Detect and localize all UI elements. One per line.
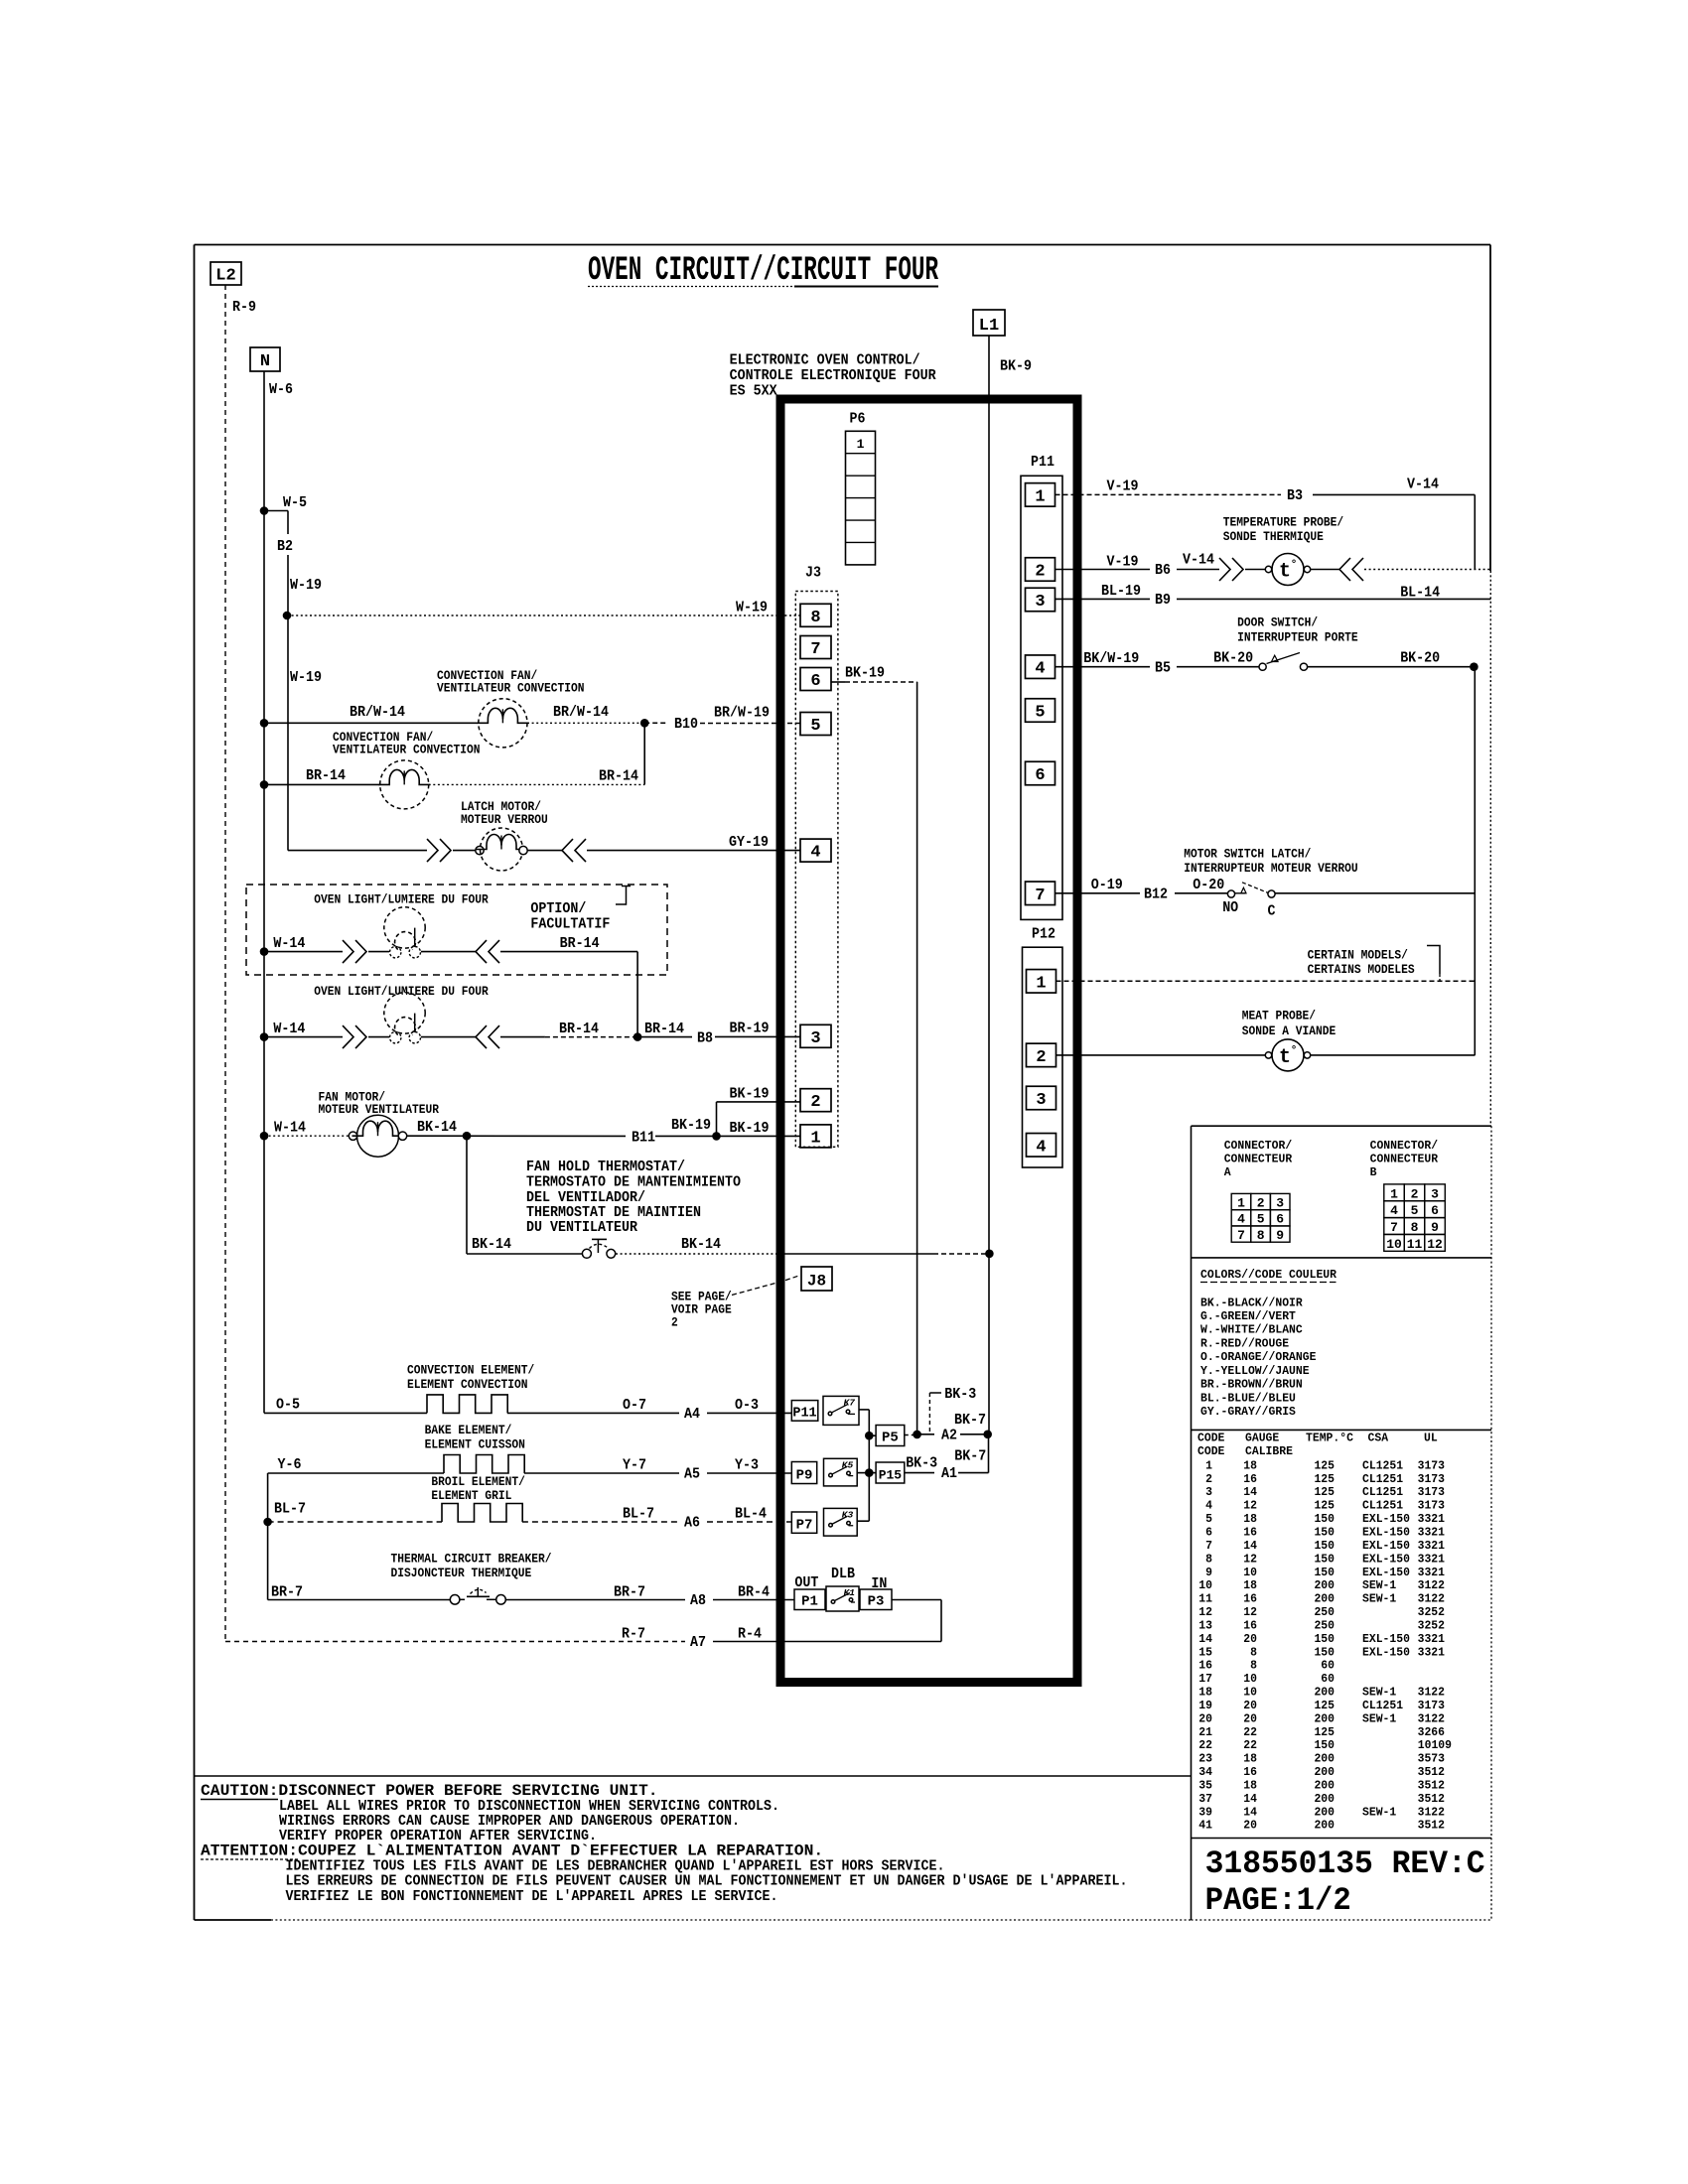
- svg-text:A1: A1: [941, 1465, 957, 1482]
- svg-text:BR-14: BR-14: [644, 1021, 684, 1037]
- svg-text:3321: 3321: [1418, 1512, 1445, 1526]
- svg-text:BR-19: BR-19: [730, 1021, 770, 1037]
- svg-text:250: 250: [1314, 1605, 1335, 1619]
- svg-text:EXL-150: EXL-150: [1362, 1526, 1410, 1540]
- svg-text:60: 60: [1321, 1672, 1335, 1686]
- svg-text:37: 37: [1198, 1792, 1212, 1806]
- svg-text:1: 1: [1390, 1186, 1398, 1201]
- svg-text:125: 125: [1314, 1472, 1335, 1486]
- svg-text:3173: 3173: [1418, 1699, 1445, 1712]
- svg-text:2: 2: [1205, 1472, 1212, 1486]
- svg-text:200: 200: [1314, 1578, 1335, 1592]
- svg-text:UL: UL: [1424, 1432, 1438, 1445]
- svg-text:16: 16: [1198, 1659, 1212, 1673]
- svg-text:3321: 3321: [1418, 1552, 1445, 1566]
- svg-text:BL-7: BL-7: [274, 1501, 306, 1518]
- svg-text:22: 22: [1243, 1738, 1257, 1752]
- svg-text:A4: A4: [684, 1406, 700, 1423]
- svg-text:CONTROLE ELECTRONIQUE FOUR: CONTROLE ELECTRONIQUE FOUR: [730, 367, 936, 384]
- svg-text:3266: 3266: [1418, 1725, 1445, 1739]
- svg-text:35: 35: [1198, 1778, 1212, 1792]
- svg-text:10: 10: [1243, 1686, 1257, 1700]
- svg-text:P5: P5: [882, 1431, 899, 1446]
- svg-text:CONVECTION ELEMENT/: CONVECTION ELEMENT/: [407, 1364, 534, 1378]
- svg-text:BAKE ELEMENT/: BAKE ELEMENT/: [425, 1424, 512, 1437]
- svg-text:OVEN LIGHT/LUMIERE DU FOUR: OVEN LIGHT/LUMIERE DU FOUR: [314, 893, 489, 907]
- svg-text:L2: L2: [215, 267, 235, 286]
- svg-text:K1: K1: [844, 1587, 855, 1598]
- svg-text:BK-7: BK-7: [954, 1448, 986, 1465]
- svg-text:1: 1: [1036, 974, 1046, 993]
- svg-text:SEW-1: SEW-1: [1362, 1592, 1396, 1606]
- svg-text:DU VENTILATEUR: DU VENTILATEUR: [526, 1219, 637, 1236]
- svg-text:Y-7: Y-7: [623, 1457, 646, 1474]
- svg-text:9: 9: [1431, 1220, 1439, 1235]
- svg-text:3122: 3122: [1418, 1578, 1445, 1592]
- svg-text:GY-19: GY-19: [729, 834, 769, 851]
- svg-text:8: 8: [1250, 1659, 1257, 1673]
- svg-text:BR-7: BR-7: [614, 1584, 645, 1601]
- svg-text:B2: B2: [277, 538, 293, 555]
- svg-text:W-14: W-14: [273, 935, 305, 952]
- svg-text:20: 20: [1243, 1632, 1257, 1646]
- svg-text:BL.-BLUE//BLEU: BL.-BLUE//BLEU: [1200, 1391, 1296, 1405]
- svg-text:BR/W-19: BR/W-19: [714, 705, 770, 722]
- svg-text:18: 18: [1243, 1512, 1257, 1526]
- svg-text:22: 22: [1243, 1725, 1257, 1739]
- svg-text:39: 39: [1198, 1805, 1212, 1819]
- svg-text:3: 3: [1276, 1195, 1284, 1210]
- svg-text:P15: P15: [879, 1468, 903, 1483]
- svg-text:3321: 3321: [1418, 1632, 1445, 1646]
- svg-text:A6: A6: [684, 1515, 700, 1532]
- svg-text:2: 2: [810, 1093, 820, 1112]
- svg-text:200: 200: [1314, 1805, 1335, 1819]
- svg-text:3173: 3173: [1418, 1499, 1445, 1513]
- svg-text:5: 5: [1257, 1212, 1265, 1227]
- svg-text:20: 20: [1243, 1699, 1257, 1712]
- svg-text:B12: B12: [1144, 886, 1168, 902]
- svg-text:16: 16: [1243, 1618, 1257, 1632]
- svg-text:EXL-150: EXL-150: [1362, 1539, 1410, 1553]
- svg-text:3: 3: [1035, 593, 1045, 612]
- svg-text:R-4: R-4: [738, 1626, 762, 1643]
- svg-text:16: 16: [1243, 1472, 1257, 1486]
- svg-text:12: 12: [1243, 1605, 1257, 1619]
- svg-text:18: 18: [1243, 1778, 1257, 1792]
- svg-text:125: 125: [1314, 1485, 1335, 1499]
- svg-text:BK-7: BK-7: [954, 1412, 986, 1429]
- svg-text:BK-3: BK-3: [906, 1455, 937, 1472]
- svg-text:LES ERREURS DE CONNECTION DE F: LES ERREURS DE CONNECTION DE FILS PEUVEN…: [286, 1873, 1128, 1890]
- svg-text:CODE: CODE: [1197, 1432, 1224, 1445]
- svg-text:VOIR PAGE: VOIR PAGE: [671, 1303, 732, 1317]
- svg-text:20: 20: [1243, 1819, 1257, 1833]
- svg-text:O.-ORANGE//ORANGE: O.-ORANGE//ORANGE: [1200, 1350, 1316, 1364]
- svg-text:17: 17: [1198, 1672, 1212, 1686]
- svg-text:O-3: O-3: [735, 1397, 759, 1414]
- svg-text:BK-14: BK-14: [681, 1236, 721, 1253]
- svg-text:10: 10: [1243, 1566, 1257, 1579]
- svg-text:200: 200: [1314, 1819, 1335, 1833]
- svg-text:6: 6: [1276, 1212, 1284, 1227]
- svg-text:3252: 3252: [1418, 1605, 1445, 1619]
- svg-text:ES 5XX: ES 5XX: [730, 383, 777, 400]
- svg-text:3512: 3512: [1418, 1765, 1445, 1779]
- svg-text:NO: NO: [1222, 899, 1238, 916]
- svg-text:SEW-1: SEW-1: [1362, 1578, 1396, 1592]
- svg-text:200: 200: [1314, 1752, 1335, 1766]
- svg-text:8: 8: [810, 609, 820, 627]
- svg-text:O-19: O-19: [1091, 877, 1123, 893]
- svg-text:14: 14: [1243, 1539, 1257, 1553]
- svg-text:18: 18: [1243, 1752, 1257, 1766]
- svg-text:11: 11: [1407, 1237, 1423, 1252]
- svg-text:ELEMENT CUISSON: ELEMENT CUISSON: [425, 1438, 525, 1452]
- svg-text:BK-19: BK-19: [671, 1117, 711, 1134]
- svg-text:10: 10: [1243, 1672, 1257, 1686]
- svg-text:K7: K7: [844, 1397, 856, 1408]
- svg-text:TERMOSTATO DE MANTENIMIENTO: TERMOSTATO DE MANTENIMIENTO: [526, 1174, 741, 1191]
- svg-text:MEAT PROBE/: MEAT PROBE/: [1242, 1010, 1316, 1024]
- svg-text:3321: 3321: [1418, 1539, 1445, 1553]
- svg-text:200: 200: [1314, 1778, 1335, 1792]
- svg-text:BK-14: BK-14: [472, 1236, 511, 1253]
- svg-text:1: 1: [1237, 1195, 1245, 1210]
- svg-text:16: 16: [1243, 1592, 1257, 1606]
- svg-text:W-5: W-5: [283, 494, 307, 511]
- svg-text:W-14: W-14: [273, 1021, 305, 1037]
- svg-text:9: 9: [1205, 1566, 1212, 1579]
- svg-text:9: 9: [1276, 1228, 1284, 1243]
- svg-text:R-9: R-9: [232, 299, 256, 316]
- svg-text:7: 7: [1035, 887, 1045, 905]
- svg-text:LATCH MOTOR/: LATCH MOTOR/: [461, 800, 541, 814]
- svg-text:18: 18: [1198, 1686, 1212, 1700]
- svg-text:BR-7: BR-7: [271, 1584, 303, 1601]
- svg-text:5: 5: [1411, 1203, 1419, 1218]
- svg-text:5: 5: [1035, 704, 1045, 723]
- svg-text:BR/W-14: BR/W-14: [553, 704, 609, 721]
- svg-text:6: 6: [810, 672, 820, 691]
- svg-text:1: 1: [1035, 487, 1045, 506]
- svg-text:150: 150: [1314, 1552, 1335, 1566]
- svg-text:7: 7: [1390, 1220, 1398, 1235]
- svg-text:3512: 3512: [1418, 1819, 1445, 1833]
- svg-text:EXL-150: EXL-150: [1362, 1552, 1410, 1566]
- svg-text:150: 150: [1314, 1512, 1335, 1526]
- svg-text:2: 2: [1411, 1186, 1419, 1201]
- svg-text:DLB: DLB: [831, 1566, 855, 1582]
- svg-text:3: 3: [1036, 1091, 1046, 1110]
- svg-text:O-5: O-5: [276, 1397, 300, 1414]
- svg-text:BR-14: BR-14: [559, 1021, 599, 1037]
- svg-text:A8: A8: [690, 1592, 706, 1609]
- svg-text:BL-14: BL-14: [1400, 585, 1440, 602]
- svg-text:125: 125: [1314, 1725, 1335, 1739]
- svg-text:2: 2: [1035, 563, 1045, 582]
- svg-text:L1: L1: [979, 317, 999, 336]
- svg-text:W.-WHITE//BLANC: W.-WHITE//BLANC: [1200, 1323, 1303, 1337]
- svg-text:CL1251: CL1251: [1362, 1472, 1403, 1486]
- svg-text:3: 3: [1205, 1485, 1212, 1499]
- svg-text:DOOR SWITCH/: DOOR SWITCH/: [1237, 616, 1318, 630]
- svg-text:K3: K3: [842, 1509, 854, 1520]
- svg-text:SONDE A VIANDE: SONDE A VIANDE: [1242, 1024, 1336, 1038]
- svg-text:A5: A5: [684, 1466, 700, 1483]
- svg-text:CL1251: CL1251: [1362, 1485, 1403, 1499]
- svg-text:2: 2: [671, 1316, 678, 1330]
- svg-text:8: 8: [1411, 1220, 1419, 1235]
- svg-text:OPTION/: OPTION/: [530, 900, 586, 917]
- svg-text:12: 12: [1243, 1552, 1257, 1566]
- svg-text:A7: A7: [690, 1634, 706, 1651]
- svg-text:BK-19: BK-19: [730, 1086, 770, 1103]
- svg-text:10: 10: [1386, 1237, 1402, 1252]
- svg-text:3321: 3321: [1418, 1566, 1445, 1579]
- svg-text:16: 16: [1243, 1526, 1257, 1540]
- svg-text:10109: 10109: [1418, 1738, 1452, 1752]
- svg-text:16: 16: [1243, 1765, 1257, 1779]
- svg-text:OVEN CIRCUIT//CIRCUIT FOUR: OVEN CIRCUIT//CIRCUIT FOUR: [588, 252, 938, 290]
- svg-text:23: 23: [1198, 1752, 1212, 1766]
- svg-text:BK/W-19: BK/W-19: [1083, 650, 1139, 667]
- svg-text:20: 20: [1198, 1711, 1212, 1725]
- svg-text:150: 150: [1314, 1738, 1335, 1752]
- svg-text:4: 4: [1237, 1212, 1245, 1227]
- svg-text:°: °: [1291, 560, 1298, 572]
- svg-text:BL-19: BL-19: [1101, 583, 1141, 600]
- svg-text:B11: B11: [632, 1130, 655, 1147]
- svg-text:R.-RED//ROUGE: R.-RED//ROUGE: [1200, 1336, 1289, 1350]
- svg-text:200: 200: [1314, 1711, 1335, 1725]
- svg-text:5: 5: [810, 717, 820, 736]
- svg-text:4: 4: [1205, 1499, 1212, 1513]
- svg-text:W-14: W-14: [274, 1120, 306, 1137]
- svg-text:150: 150: [1314, 1632, 1335, 1646]
- svg-text:BR-14: BR-14: [560, 935, 600, 952]
- svg-text:V-14: V-14: [1183, 552, 1214, 569]
- svg-text:3321: 3321: [1418, 1645, 1445, 1659]
- svg-text:OVEN LIGHT/LUMIERE DU FOUR: OVEN LIGHT/LUMIERE DU FOUR: [314, 985, 489, 999]
- svg-text:14: 14: [1243, 1485, 1257, 1499]
- svg-text:MOTOR SWITCH LATCH/: MOTOR SWITCH LATCH/: [1184, 848, 1311, 862]
- svg-text:12: 12: [1427, 1237, 1443, 1252]
- svg-text:t: t: [1279, 561, 1291, 584]
- svg-text:125: 125: [1314, 1699, 1335, 1712]
- svg-text:4: 4: [810, 844, 820, 863]
- svg-text:BK.-BLACK//NOIR: BK.-BLACK//NOIR: [1200, 1296, 1303, 1309]
- svg-text:CL1251: CL1251: [1362, 1499, 1403, 1513]
- svg-text:FAN HOLD THERMOSTAT/: FAN HOLD THERMOSTAT/: [526, 1159, 685, 1175]
- svg-text:CALIBRE: CALIBRE: [1245, 1444, 1293, 1458]
- svg-text:BK-20: BK-20: [1400, 649, 1440, 666]
- svg-text:BK-9: BK-9: [1000, 358, 1032, 375]
- svg-text:CONNECTEUR: CONNECTEUR: [1224, 1153, 1293, 1166]
- svg-text:1: 1: [810, 1129, 820, 1148]
- svg-text:INTERRUPTEUR PORTE: INTERRUPTEUR PORTE: [1237, 631, 1358, 645]
- svg-text:P11: P11: [792, 1407, 816, 1422]
- svg-text:VERIFIEZ LE BON FONCTIONNEMENT: VERIFIEZ LE BON FONCTIONNEMENT DE L'APPA…: [286, 1888, 778, 1905]
- svg-text:A2: A2: [941, 1428, 957, 1444]
- svg-text:3512: 3512: [1418, 1792, 1445, 1806]
- svg-text:SEW-1: SEW-1: [1362, 1686, 1396, 1700]
- svg-text:EXL-150: EXL-150: [1362, 1645, 1410, 1659]
- svg-text:THERMAL CIRCUIT BREAKER/: THERMAL CIRCUIT BREAKER/: [391, 1553, 552, 1567]
- svg-text:BL-4: BL-4: [735, 1506, 767, 1523]
- svg-text:3122: 3122: [1418, 1592, 1445, 1606]
- svg-text:200: 200: [1314, 1792, 1335, 1806]
- svg-text:3321: 3321: [1418, 1526, 1445, 1540]
- svg-text:SONDE THERMIQUE: SONDE THERMIQUE: [1223, 530, 1324, 544]
- svg-text:22: 22: [1198, 1738, 1212, 1752]
- svg-text:W-19: W-19: [290, 669, 322, 686]
- svg-text:21: 21: [1198, 1725, 1212, 1739]
- svg-text:BL-7: BL-7: [623, 1506, 654, 1523]
- svg-text:W-19: W-19: [290, 577, 322, 594]
- svg-text:BROIL ELEMENT/: BROIL ELEMENT/: [431, 1475, 525, 1489]
- svg-text:3173: 3173: [1418, 1485, 1445, 1499]
- svg-text:34: 34: [1198, 1765, 1212, 1779]
- svg-text:41: 41: [1198, 1819, 1212, 1833]
- svg-text:3: 3: [810, 1029, 820, 1048]
- svg-text:200: 200: [1314, 1686, 1335, 1700]
- svg-text:5: 5: [1205, 1512, 1212, 1526]
- svg-text:BR-14: BR-14: [599, 768, 638, 785]
- svg-text:V-19: V-19: [1107, 478, 1139, 495]
- svg-text:3122: 3122: [1418, 1686, 1445, 1700]
- svg-text:ELECTRONIC OVEN CONTROL/: ELECTRONIC OVEN CONTROL/: [730, 352, 920, 369]
- svg-text:P3: P3: [868, 1594, 885, 1610]
- svg-text:318550135 REV:C: 318550135 REV:C: [1205, 1845, 1485, 1882]
- svg-text:1: 1: [1205, 1458, 1212, 1472]
- svg-text:19: 19: [1198, 1699, 1212, 1712]
- svg-text:SEW-1: SEW-1: [1362, 1805, 1396, 1819]
- svg-text:EXL-150: EXL-150: [1362, 1632, 1410, 1646]
- svg-text:3122: 3122: [1418, 1711, 1445, 1725]
- svg-text:18: 18: [1243, 1458, 1257, 1472]
- svg-text:3122: 3122: [1418, 1805, 1445, 1819]
- svg-text:O-7: O-7: [623, 1397, 646, 1414]
- svg-text:150: 150: [1314, 1539, 1335, 1553]
- svg-text:BR/W-14: BR/W-14: [350, 704, 405, 721]
- svg-text:B8: B8: [697, 1030, 713, 1047]
- svg-text:20: 20: [1243, 1711, 1257, 1725]
- svg-text:250: 250: [1314, 1618, 1335, 1632]
- svg-text:ELEMENT GRIL: ELEMENT GRIL: [431, 1489, 511, 1503]
- svg-text:TEMP.°C: TEMP.°C: [1306, 1432, 1353, 1445]
- svg-text:15: 15: [1198, 1645, 1212, 1659]
- svg-text:BK-19: BK-19: [730, 1120, 770, 1137]
- svg-text:A: A: [1224, 1165, 1232, 1179]
- svg-text:CONNECTOR/: CONNECTOR/: [1224, 1139, 1293, 1153]
- svg-text:CL1251: CL1251: [1362, 1699, 1403, 1712]
- svg-text:CERTAIN MODELS/: CERTAIN MODELS/: [1308, 949, 1408, 963]
- svg-text:150: 150: [1314, 1645, 1335, 1659]
- svg-text:BK-3: BK-3: [944, 1386, 976, 1403]
- svg-text:150: 150: [1314, 1526, 1335, 1540]
- svg-text:P7: P7: [796, 1518, 813, 1534]
- svg-text:FACULTATIF: FACULTATIF: [530, 916, 610, 933]
- svg-text:BK-14: BK-14: [417, 1119, 457, 1136]
- svg-text:B3: B3: [1287, 487, 1303, 504]
- svg-text:MOTEUR VERROU: MOTEUR VERROU: [461, 813, 548, 827]
- svg-text:C: C: [1268, 903, 1276, 920]
- svg-text:13: 13: [1198, 1618, 1212, 1632]
- svg-text:10: 10: [1198, 1578, 1212, 1592]
- svg-text:Y-3: Y-3: [735, 1457, 759, 1474]
- svg-text:EXL-150: EXL-150: [1362, 1566, 1410, 1579]
- svg-text:SEW-1: SEW-1: [1362, 1711, 1396, 1725]
- svg-text:W-6: W-6: [269, 381, 293, 398]
- svg-text:EXL-150: EXL-150: [1362, 1512, 1410, 1526]
- svg-text:PAGE:1/2: PAGE:1/2: [1205, 1882, 1351, 1919]
- svg-text:VENTILATEUR CONVECTION: VENTILATEUR CONVECTION: [333, 744, 481, 757]
- svg-text:125: 125: [1314, 1458, 1335, 1472]
- svg-text:3173: 3173: [1418, 1472, 1445, 1486]
- svg-text:°: °: [1291, 1045, 1298, 1057]
- svg-text:BK-20: BK-20: [1213, 649, 1253, 666]
- svg-text:125: 125: [1314, 1499, 1335, 1513]
- svg-text:3252: 3252: [1418, 1618, 1445, 1632]
- svg-text:G.-GREEN//VERT: G.-GREEN//VERT: [1200, 1309, 1296, 1323]
- svg-text:7: 7: [1205, 1539, 1212, 1553]
- svg-text:200: 200: [1314, 1592, 1335, 1606]
- svg-text:8: 8: [1205, 1552, 1212, 1566]
- svg-text:60: 60: [1321, 1659, 1335, 1673]
- svg-text:TEMPERATURE PROBE/: TEMPERATURE PROBE/: [1223, 516, 1344, 530]
- svg-text:BR-4: BR-4: [738, 1584, 770, 1601]
- svg-text:B5: B5: [1155, 659, 1171, 676]
- svg-text:3573: 3573: [1418, 1752, 1445, 1766]
- svg-text:B10: B10: [674, 716, 698, 733]
- svg-text:DISJONCTEUR THERMIQUE: DISJONCTEUR THERMIQUE: [391, 1567, 532, 1580]
- svg-text:BR.-BROWN//BRUN: BR.-BROWN//BRUN: [1200, 1378, 1303, 1392]
- svg-text:CSA: CSA: [1368, 1432, 1389, 1445]
- svg-text:SEE PAGE/: SEE PAGE/: [671, 1291, 732, 1304]
- svg-text:3: 3: [1431, 1186, 1439, 1201]
- svg-text:J3: J3: [805, 565, 821, 582]
- svg-text:N: N: [260, 352, 270, 371]
- svg-text:200: 200: [1314, 1765, 1335, 1779]
- svg-text:8: 8: [1250, 1645, 1257, 1659]
- svg-text:8: 8: [1257, 1228, 1265, 1243]
- svg-text:GAUGE: GAUGE: [1245, 1432, 1279, 1445]
- svg-text:1: 1: [857, 437, 865, 452]
- svg-text:P9: P9: [796, 1468, 813, 1484]
- svg-text:GY.-GRAY//GRIS: GY.-GRAY//GRIS: [1200, 1405, 1296, 1419]
- svg-text:P6: P6: [850, 411, 866, 428]
- svg-text:3173: 3173: [1418, 1458, 1445, 1472]
- svg-text:7: 7: [810, 640, 820, 659]
- svg-text:CONNECTEUR: CONNECTEUR: [1370, 1153, 1439, 1166]
- svg-text:COLORS//CODE COULEUR: COLORS//CODE COULEUR: [1200, 1268, 1337, 1282]
- svg-text:W-19: W-19: [736, 600, 768, 616]
- svg-text:4: 4: [1035, 660, 1045, 679]
- svg-text:B9: B9: [1155, 592, 1171, 609]
- svg-text:t: t: [1279, 1046, 1291, 1069]
- svg-text:VENTILATEUR CONVECTION: VENTILATEUR CONVECTION: [437, 682, 585, 696]
- svg-text:4: 4: [1390, 1203, 1398, 1218]
- svg-text:14: 14: [1243, 1805, 1257, 1819]
- svg-text:V-14: V-14: [1407, 477, 1439, 493]
- svg-text:12: 12: [1243, 1499, 1257, 1513]
- svg-text:6: 6: [1431, 1203, 1439, 1218]
- svg-text:6: 6: [1205, 1526, 1212, 1540]
- svg-text:2: 2: [1257, 1195, 1265, 1210]
- svg-text:B: B: [1370, 1165, 1377, 1179]
- svg-text:18: 18: [1243, 1578, 1257, 1592]
